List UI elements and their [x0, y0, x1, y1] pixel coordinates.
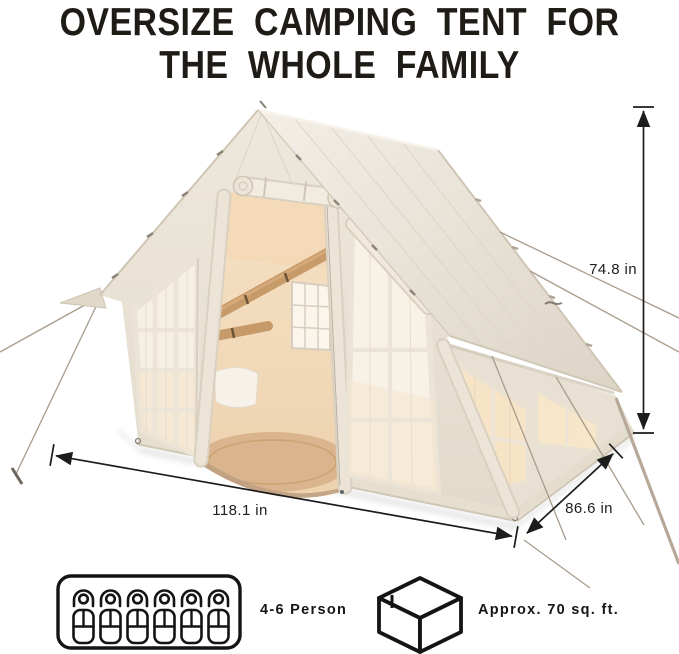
sleeping-capacity-icon [58, 576, 240, 648]
height-dimension-label: 74.8 in [545, 262, 637, 278]
storage-box-icon [379, 578, 461, 652]
guy-ropes-left [0, 296, 101, 484]
width-dimension-label: 118.1 in [180, 503, 300, 519]
tent-illustration [0, 0, 679, 654]
capacity-label: 4-6 Person [260, 602, 347, 619]
area-label: Approx. 70 sq. ft. [478, 602, 619, 619]
depth-dimension-label: 86.6 in [539, 501, 639, 517]
product-infographic: OVERSIZE CAMPING TENT FOR THE WHOLE FAMI… [0, 0, 679, 654]
